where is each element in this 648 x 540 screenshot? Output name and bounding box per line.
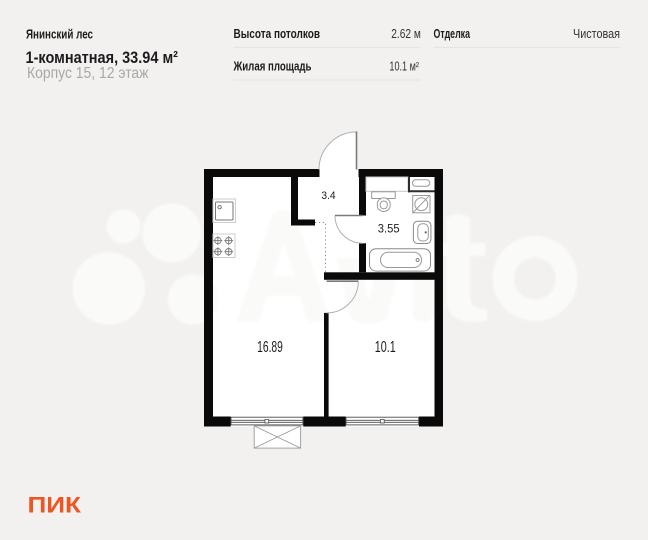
svg-text:Корпус 15, 12 этаж: Корпус 15, 12 этаж — [27, 65, 149, 82]
svg-text:16.89: 16.89 — [257, 339, 283, 356]
svg-text:ПИК: ПИК — [28, 493, 82, 518]
svg-text:Чистовая: Чистовая — [573, 27, 620, 41]
svg-text:2.62 м: 2.62 м — [391, 27, 421, 41]
svg-text:Янинский лес: Янинский лес — [26, 26, 93, 41]
svg-text:1-комнатная, 33.94 м²: 1-комнатная, 33.94 м² — [26, 48, 179, 67]
svg-text:3.4: 3.4 — [321, 190, 335, 202]
svg-text:Высота потолков: Высота потолков — [234, 27, 321, 41]
svg-text:Отделка: Отделка — [434, 27, 471, 41]
svg-text:Жилая площадь: Жилая площадь — [233, 60, 312, 74]
svg-text:10.1 м²: 10.1 м² — [389, 60, 419, 74]
svg-text:10.1: 10.1 — [375, 339, 396, 356]
svg-text:3.55: 3.55 — [378, 224, 400, 236]
